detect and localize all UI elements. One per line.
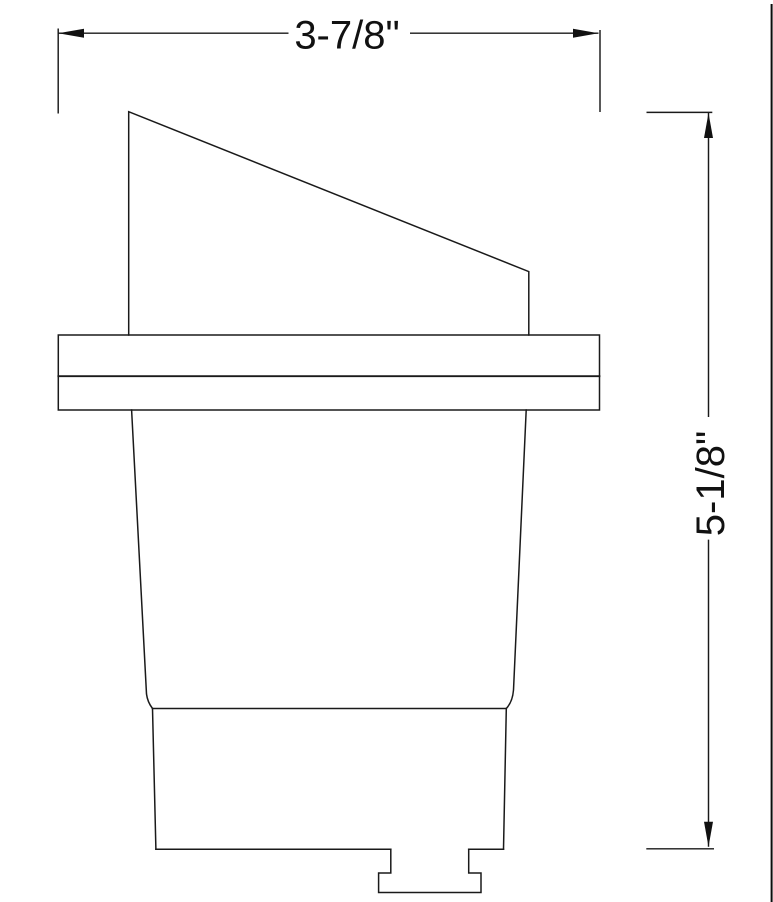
svg-text:5-1/8": 5-1/8" [689, 431, 733, 536]
svg-text:3-7/8": 3-7/8" [294, 14, 399, 58]
